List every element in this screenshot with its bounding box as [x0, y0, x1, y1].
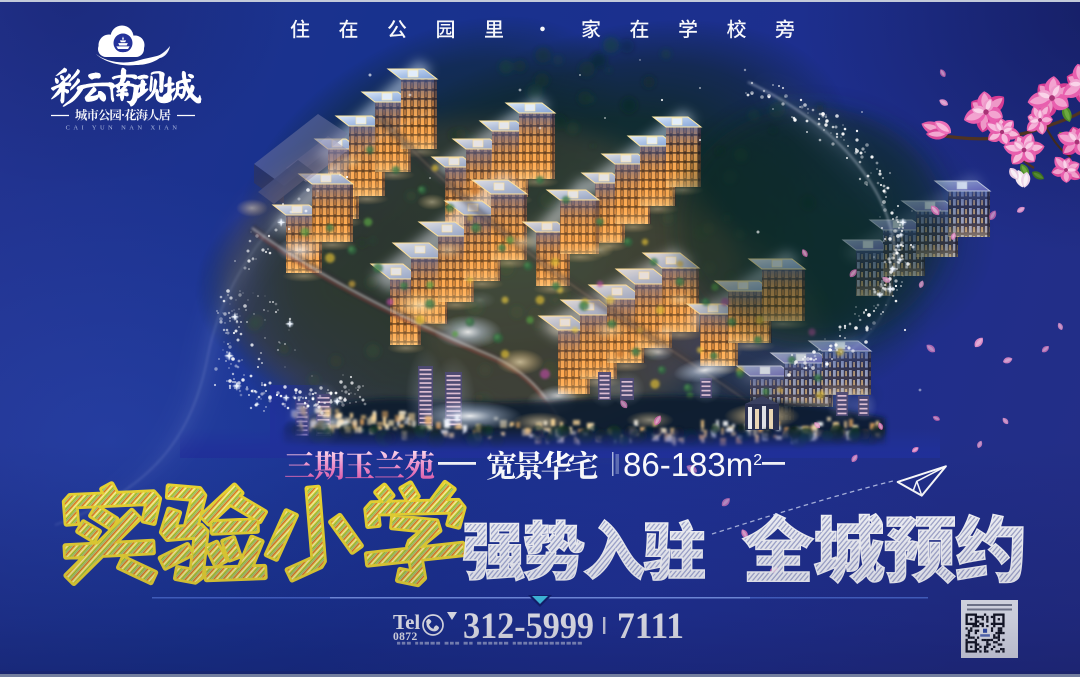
- svg-text:CAI YUN NAN XIAN: CAI YUN NAN XIAN: [66, 125, 181, 132]
